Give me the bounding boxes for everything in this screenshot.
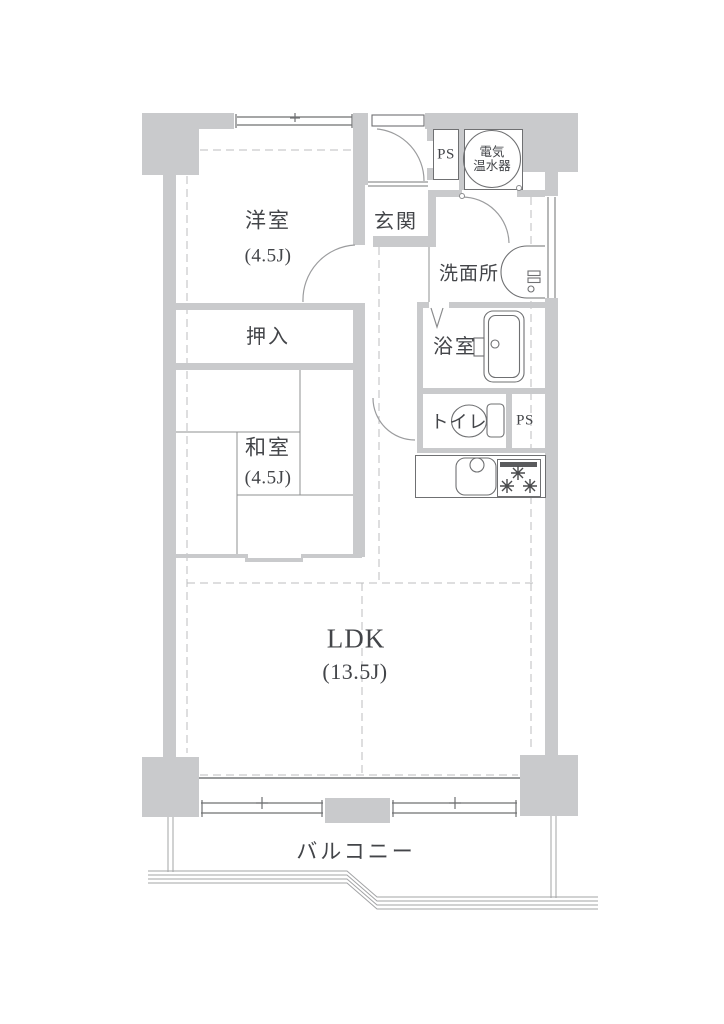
window-balcony-right-icon — [392, 797, 517, 817]
entrance-threshold — [368, 182, 428, 186]
window-balcony-left-icon — [201, 797, 323, 817]
folding-door-bath-icon — [431, 308, 443, 327]
label-toilet: トイレ — [431, 413, 488, 431]
label-balcony: バルコニー — [296, 842, 416, 863]
label-japanese-room: 和室 — [245, 438, 291, 459]
stove-burners-icon — [500, 466, 537, 493]
label-water-heater-line2: 温水器 — [473, 159, 511, 173]
door-arc-washroom — [462, 197, 509, 243]
label-water-heater-line1: 電気 — [473, 145, 511, 159]
door-arc-toilet — [373, 398, 415, 440]
label-ldk-size: (13.5J) — [322, 661, 387, 683]
label-bathroom: 浴室 — [433, 337, 477, 357]
label-closet: 押入 — [246, 327, 290, 347]
label-washroom: 洗面所 — [439, 265, 499, 284]
fixtures-layer — [0, 0, 724, 1024]
entrance-door-leaf — [372, 115, 424, 126]
label-entrance: 玄関 — [374, 212, 418, 232]
label-ldk: LDK — [327, 626, 386, 653]
door-arc-west-room — [303, 245, 355, 302]
label-ps-mid: PS — [516, 414, 534, 429]
bathtub-icon — [474, 311, 524, 382]
wash-basin-icon — [501, 246, 545, 298]
label-ps-top: PS — [437, 148, 455, 163]
door-arcs — [303, 129, 509, 440]
label-western-room-size: (4.5J) — [245, 247, 292, 266]
door-hinge-dot-2 — [517, 186, 522, 191]
window-washroom-icon — [548, 197, 555, 298]
kitchen-sink-icon — [456, 458, 496, 495]
window-west-room-icon — [236, 113, 352, 128]
door-arc-entrance — [377, 129, 424, 181]
label-water-heater: 電気 温水器 — [473, 145, 511, 173]
label-japanese-room-size: (4.5J) — [245, 469, 292, 488]
label-western-room: 洋室 — [245, 211, 291, 232]
floor-plan: 洋室 (4.5J) 玄関 押入 和室 (4.5J) 洗面所 浴室 トイレ PS … — [0, 0, 724, 1024]
door-hinge-dot-1 — [460, 194, 465, 199]
